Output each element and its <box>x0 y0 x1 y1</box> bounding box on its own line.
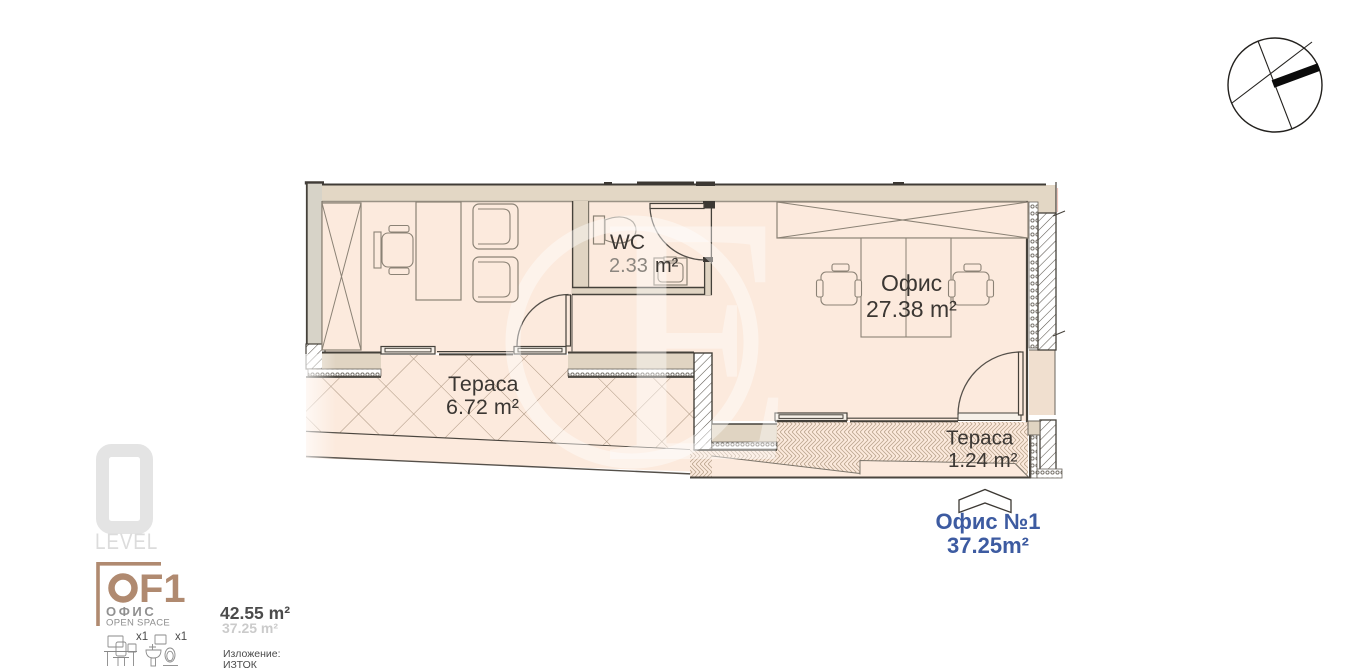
svg-text:ИЗТОК: ИЗТОК <box>223 659 258 669</box>
svg-text:27.38 m²: 27.38 m² <box>866 296 957 322</box>
svg-text:WC: WC <box>610 231 645 254</box>
svg-text:6.72 m²: 6.72 m² <box>446 395 519 419</box>
svg-text:37.25m²: 37.25m² <box>947 533 1029 558</box>
svg-text:Офис №1: Офис №1 <box>936 509 1041 534</box>
svg-text:1.24 m²: 1.24 m² <box>948 449 1018 472</box>
svg-text:OPEN SPACE: OPEN SPACE <box>106 618 170 629</box>
svg-text:Тераса: Тераса <box>448 372 519 396</box>
svg-text:LEVEL: LEVEL <box>95 530 158 555</box>
svg-text:2.33: 2.33 <box>609 255 648 277</box>
svg-text:37.25 m²: 37.25 m² <box>222 620 278 636</box>
svg-text:E: E <box>601 143 794 536</box>
svg-text:x1: x1 <box>175 631 187 643</box>
svg-text:Тераса: Тераса <box>946 427 1014 450</box>
svg-text:x1: x1 <box>136 631 148 643</box>
svg-text:m²: m² <box>655 255 679 277</box>
svg-text:Офис: Офис <box>881 270 942 296</box>
